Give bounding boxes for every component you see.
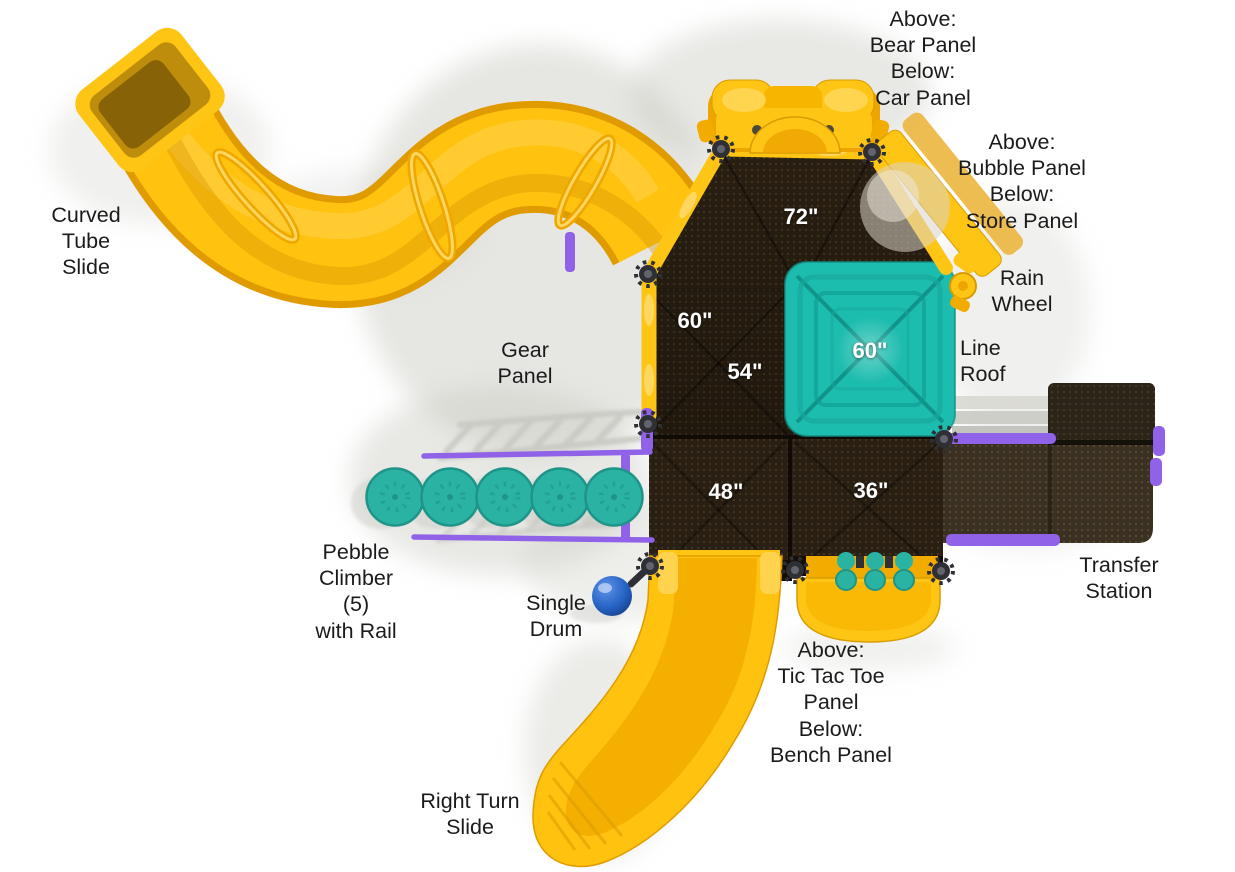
measurement-deck-54: 54": [728, 359, 763, 385]
transfer-stairs-shadow: [952, 396, 1050, 439]
measurement-deck-36: 36": [854, 478, 889, 504]
callout-tic-tac-toe-bench: Above: Tic Tac Toe Panel Below: Bench Pa…: [770, 637, 892, 768]
callout-rain-wheel: Rain Wheel: [992, 265, 1053, 317]
callout-curved-tube-slide: Curved Tube Slide: [51, 202, 120, 281]
measurement-deck-60-left: 60": [678, 308, 713, 334]
playground-diagram: Above: Bear Panel Below: Car Panel Above…: [0, 0, 1235, 872]
callout-pebble-climber: Pebble Climber (5) with Rail: [315, 539, 396, 644]
callout-single-drum: Single Drum: [526, 590, 586, 642]
callout-bubble-store-panel: Above: Bubble Panel Below: Store Panel: [958, 129, 1086, 234]
measurement-roof-60: 60": [853, 338, 888, 364]
callout-transfer-station: Transfer Station: [1079, 552, 1158, 604]
pebbles: [367, 469, 643, 526]
spinner-knobs: [836, 552, 914, 590]
callout-gear-panel: Gear Panel: [498, 337, 553, 389]
tic-tac-toe-bench-panel: [797, 552, 940, 642]
callout-bear-car-panel: Above: Bear Panel Below: Car Panel: [870, 6, 976, 111]
transfer-station: [943, 383, 1165, 546]
measurement-deck-72: 72": [784, 204, 819, 230]
measurement-deck-48: 48": [709, 479, 744, 505]
support-post: [565, 232, 575, 272]
callout-right-turn-slide: Right Turn Slide: [420, 788, 519, 840]
callout-line-roof: Line Roof: [960, 335, 1005, 387]
